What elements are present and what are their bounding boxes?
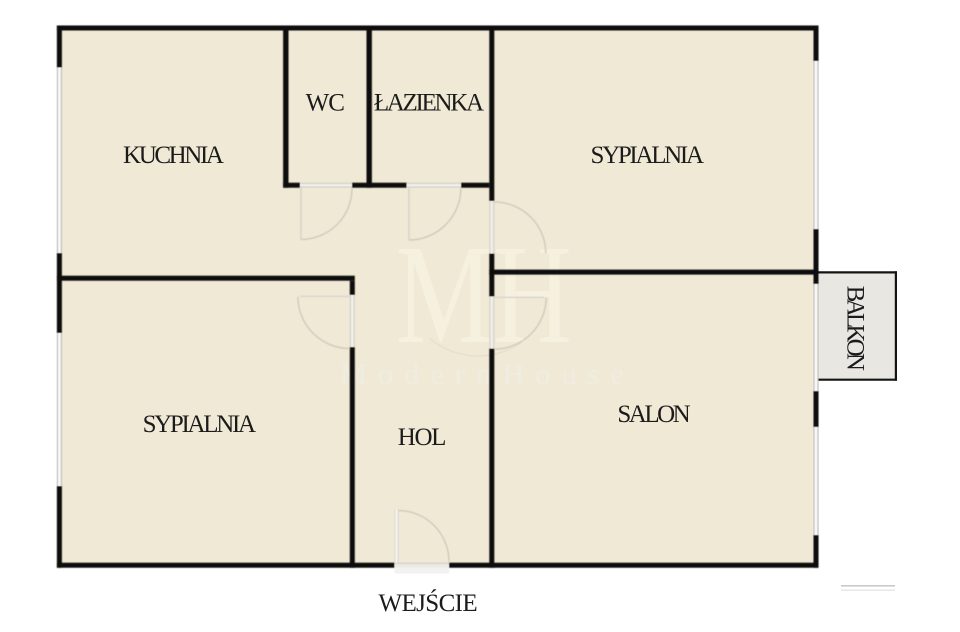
svg-text:SYPIALNIA: SYPIALNIA — [590, 142, 703, 169]
svg-text:WC: WC — [306, 89, 345, 116]
svg-text:SYPIALNIA: SYPIALNIA — [143, 411, 256, 438]
svg-text:SALON: SALON — [617, 401, 690, 428]
svg-text:BALKON: BALKON — [842, 286, 869, 371]
svg-text:HOL: HOL — [398, 424, 445, 451]
svg-text:ModernHouse: ModernHouse — [340, 358, 635, 391]
svg-text:KUCHNIA: KUCHNIA — [123, 142, 224, 169]
svg-text:WEJŚCIE: WEJŚCIE — [379, 589, 478, 617]
svg-text:MH: MH — [396, 217, 572, 374]
svg-text:ŁAZIENKA: ŁAZIENKA — [374, 89, 484, 116]
